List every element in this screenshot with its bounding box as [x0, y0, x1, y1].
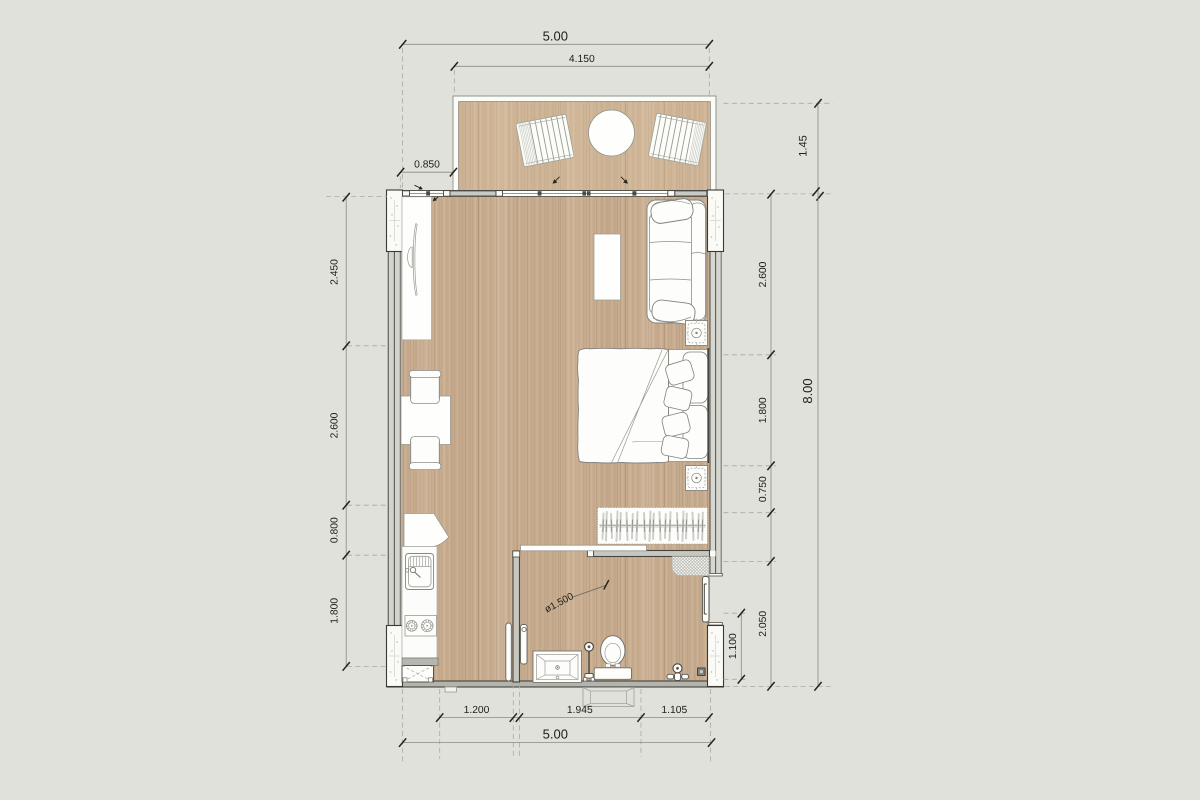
svg-text:0.750: 0.750: [758, 476, 769, 502]
svg-text:1.200: 1.200: [464, 705, 490, 716]
svg-text:5.00: 5.00: [543, 726, 568, 741]
svg-text:0.850: 0.850: [414, 160, 440, 171]
svg-text:1.945: 1.945: [567, 705, 593, 716]
svg-text:5.00: 5.00: [543, 28, 568, 43]
svg-text:2.600: 2.600: [330, 412, 341, 438]
svg-text:1.800: 1.800: [330, 598, 341, 624]
svg-text:8.00: 8.00: [800, 378, 815, 403]
svg-text:4.150: 4.150: [569, 54, 595, 65]
svg-text:2.600: 2.600: [758, 261, 769, 287]
svg-text:2.050: 2.050: [758, 611, 769, 637]
svg-text:2.450: 2.450: [330, 259, 341, 285]
svg-text:0.800: 0.800: [330, 517, 341, 543]
svg-text:1.45: 1.45: [798, 135, 810, 156]
svg-text:1.105: 1.105: [661, 705, 687, 716]
svg-text:1.100: 1.100: [728, 633, 739, 659]
svg-text:1.800: 1.800: [758, 397, 769, 423]
